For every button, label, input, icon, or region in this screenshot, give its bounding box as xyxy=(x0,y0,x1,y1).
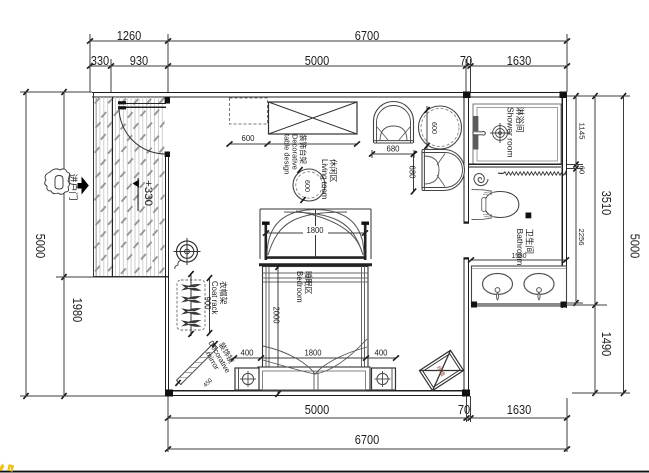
svg-text:1980: 1980 xyxy=(70,298,85,323)
svg-text:卫生间: 卫生间 xyxy=(524,229,534,255)
svg-text:1580: 1580 xyxy=(512,253,527,260)
svg-text:400: 400 xyxy=(241,349,255,358)
svg-text:330: 330 xyxy=(91,53,109,68)
svg-text:+330: +330 xyxy=(142,180,154,206)
svg-text:table design: table design xyxy=(282,134,291,174)
svg-text:1490: 1490 xyxy=(599,332,614,357)
svg-text:70: 70 xyxy=(458,402,470,417)
svg-text:600: 600 xyxy=(430,122,439,134)
svg-text:休闲区: 休闲区 xyxy=(329,159,339,183)
svg-text:Living room: Living room xyxy=(320,159,329,199)
svg-text:淋浴间: 淋浴间 xyxy=(515,107,525,133)
svg-text:Coat rack: Coat rack xyxy=(210,281,219,314)
svg-text:6700: 6700 xyxy=(355,28,380,43)
svg-text:5000: 5000 xyxy=(628,234,643,259)
svg-text:进户门: 进户门 xyxy=(68,173,79,200)
svg-text:600: 600 xyxy=(303,180,312,192)
svg-text:680: 680 xyxy=(387,145,401,154)
svg-text:6700: 6700 xyxy=(355,432,380,447)
svg-text:2256: 2256 xyxy=(577,229,586,246)
svg-text:3510: 3510 xyxy=(599,191,614,216)
svg-text:1145: 1145 xyxy=(578,123,587,140)
svg-text:Bedroom: Bedroom xyxy=(295,271,304,303)
svg-text:Shower room: Shower room xyxy=(505,107,515,158)
svg-text:600: 600 xyxy=(242,134,256,143)
svg-text:衣帽架: 衣帽架 xyxy=(219,281,229,305)
svg-text:5000: 5000 xyxy=(33,234,48,259)
svg-text:60: 60 xyxy=(578,166,587,175)
svg-text:5000: 5000 xyxy=(305,53,330,68)
svg-text:5000: 5000 xyxy=(305,402,330,417)
svg-text:930: 930 xyxy=(130,53,148,68)
svg-text:1800: 1800 xyxy=(305,349,323,358)
svg-text:680: 680 xyxy=(408,166,417,180)
svg-text:1800: 1800 xyxy=(307,226,325,235)
svg-text:1630: 1630 xyxy=(507,53,532,68)
svg-text:400: 400 xyxy=(375,349,389,358)
svg-text:2000: 2000 xyxy=(272,307,281,325)
svg-text:1630: 1630 xyxy=(507,402,532,417)
svg-text:1260: 1260 xyxy=(117,28,142,43)
